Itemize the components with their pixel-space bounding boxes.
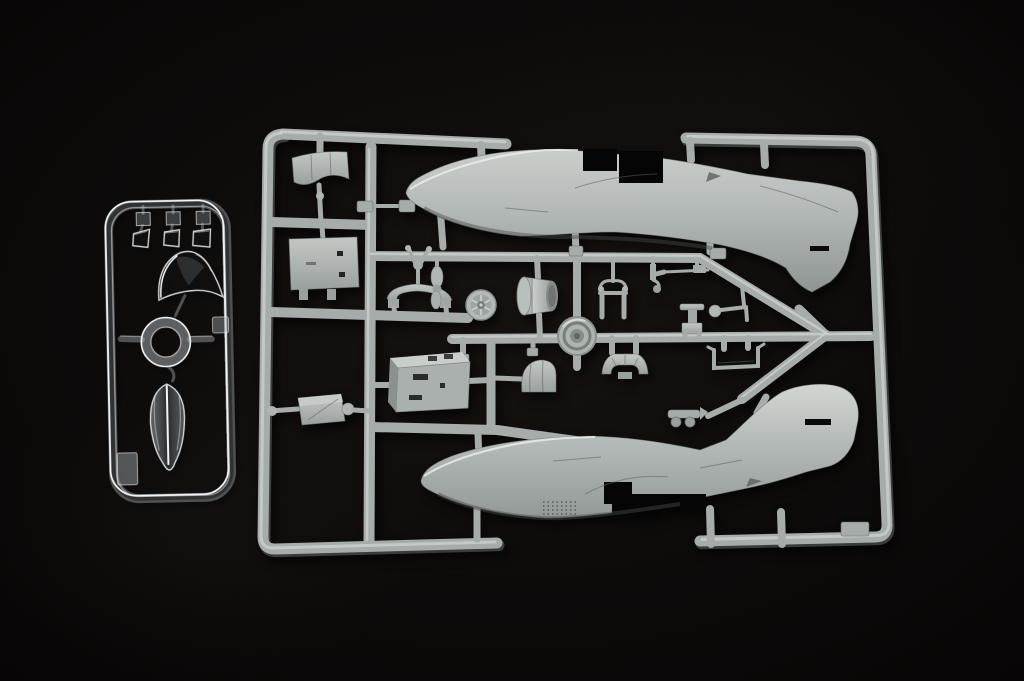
wing-root-cutout	[619, 151, 663, 183]
canopy-windscreen	[158, 251, 224, 316]
cockpit-tub	[372, 352, 490, 412]
clear-sprue	[105, 200, 232, 499]
spoked-wheel	[466, 290, 496, 320]
sprue-photo-svg	[0, 0, 1024, 681]
clear-tab-left	[117, 453, 138, 485]
cockpit-cutout	[583, 149, 617, 171]
bomb-trolley	[668, 407, 708, 427]
rod-bracket	[709, 305, 747, 320]
rail-divider-2	[271, 312, 468, 318]
engine-cylinder	[517, 277, 558, 315]
u-bracket	[708, 344, 764, 368]
gear-fork	[598, 263, 628, 317]
windscreen-small-parts	[132, 205, 211, 249]
elevator-slot	[810, 246, 829, 251]
bulkhead-plate	[289, 226, 359, 300]
headrest-dome	[494, 360, 556, 392]
windscreen-small-3	[192, 205, 211, 247]
clear-tab-right	[212, 317, 228, 333]
gear-door-assembly	[267, 394, 369, 425]
sight-ring	[141, 317, 191, 382]
main-wheel	[558, 317, 596, 355]
windscreen-small-1	[132, 206, 151, 247]
seat	[680, 304, 704, 339]
photo-stage: Photograph of two injection-moulded mode…	[0, 0, 1024, 681]
prop-lever	[431, 259, 443, 309]
exhaust-fan	[602, 354, 648, 379]
elevator-slot	[805, 419, 831, 425]
grey-sprue	[261, 132, 889, 551]
tail-wheel-fork	[405, 245, 432, 284]
fuselage-half-upper	[406, 149, 858, 292]
teardrop-canopy	[150, 384, 186, 471]
windscreen-small-2	[163, 206, 181, 247]
cowl-panel	[292, 152, 349, 222]
wing-root-cutout	[658, 494, 706, 511]
